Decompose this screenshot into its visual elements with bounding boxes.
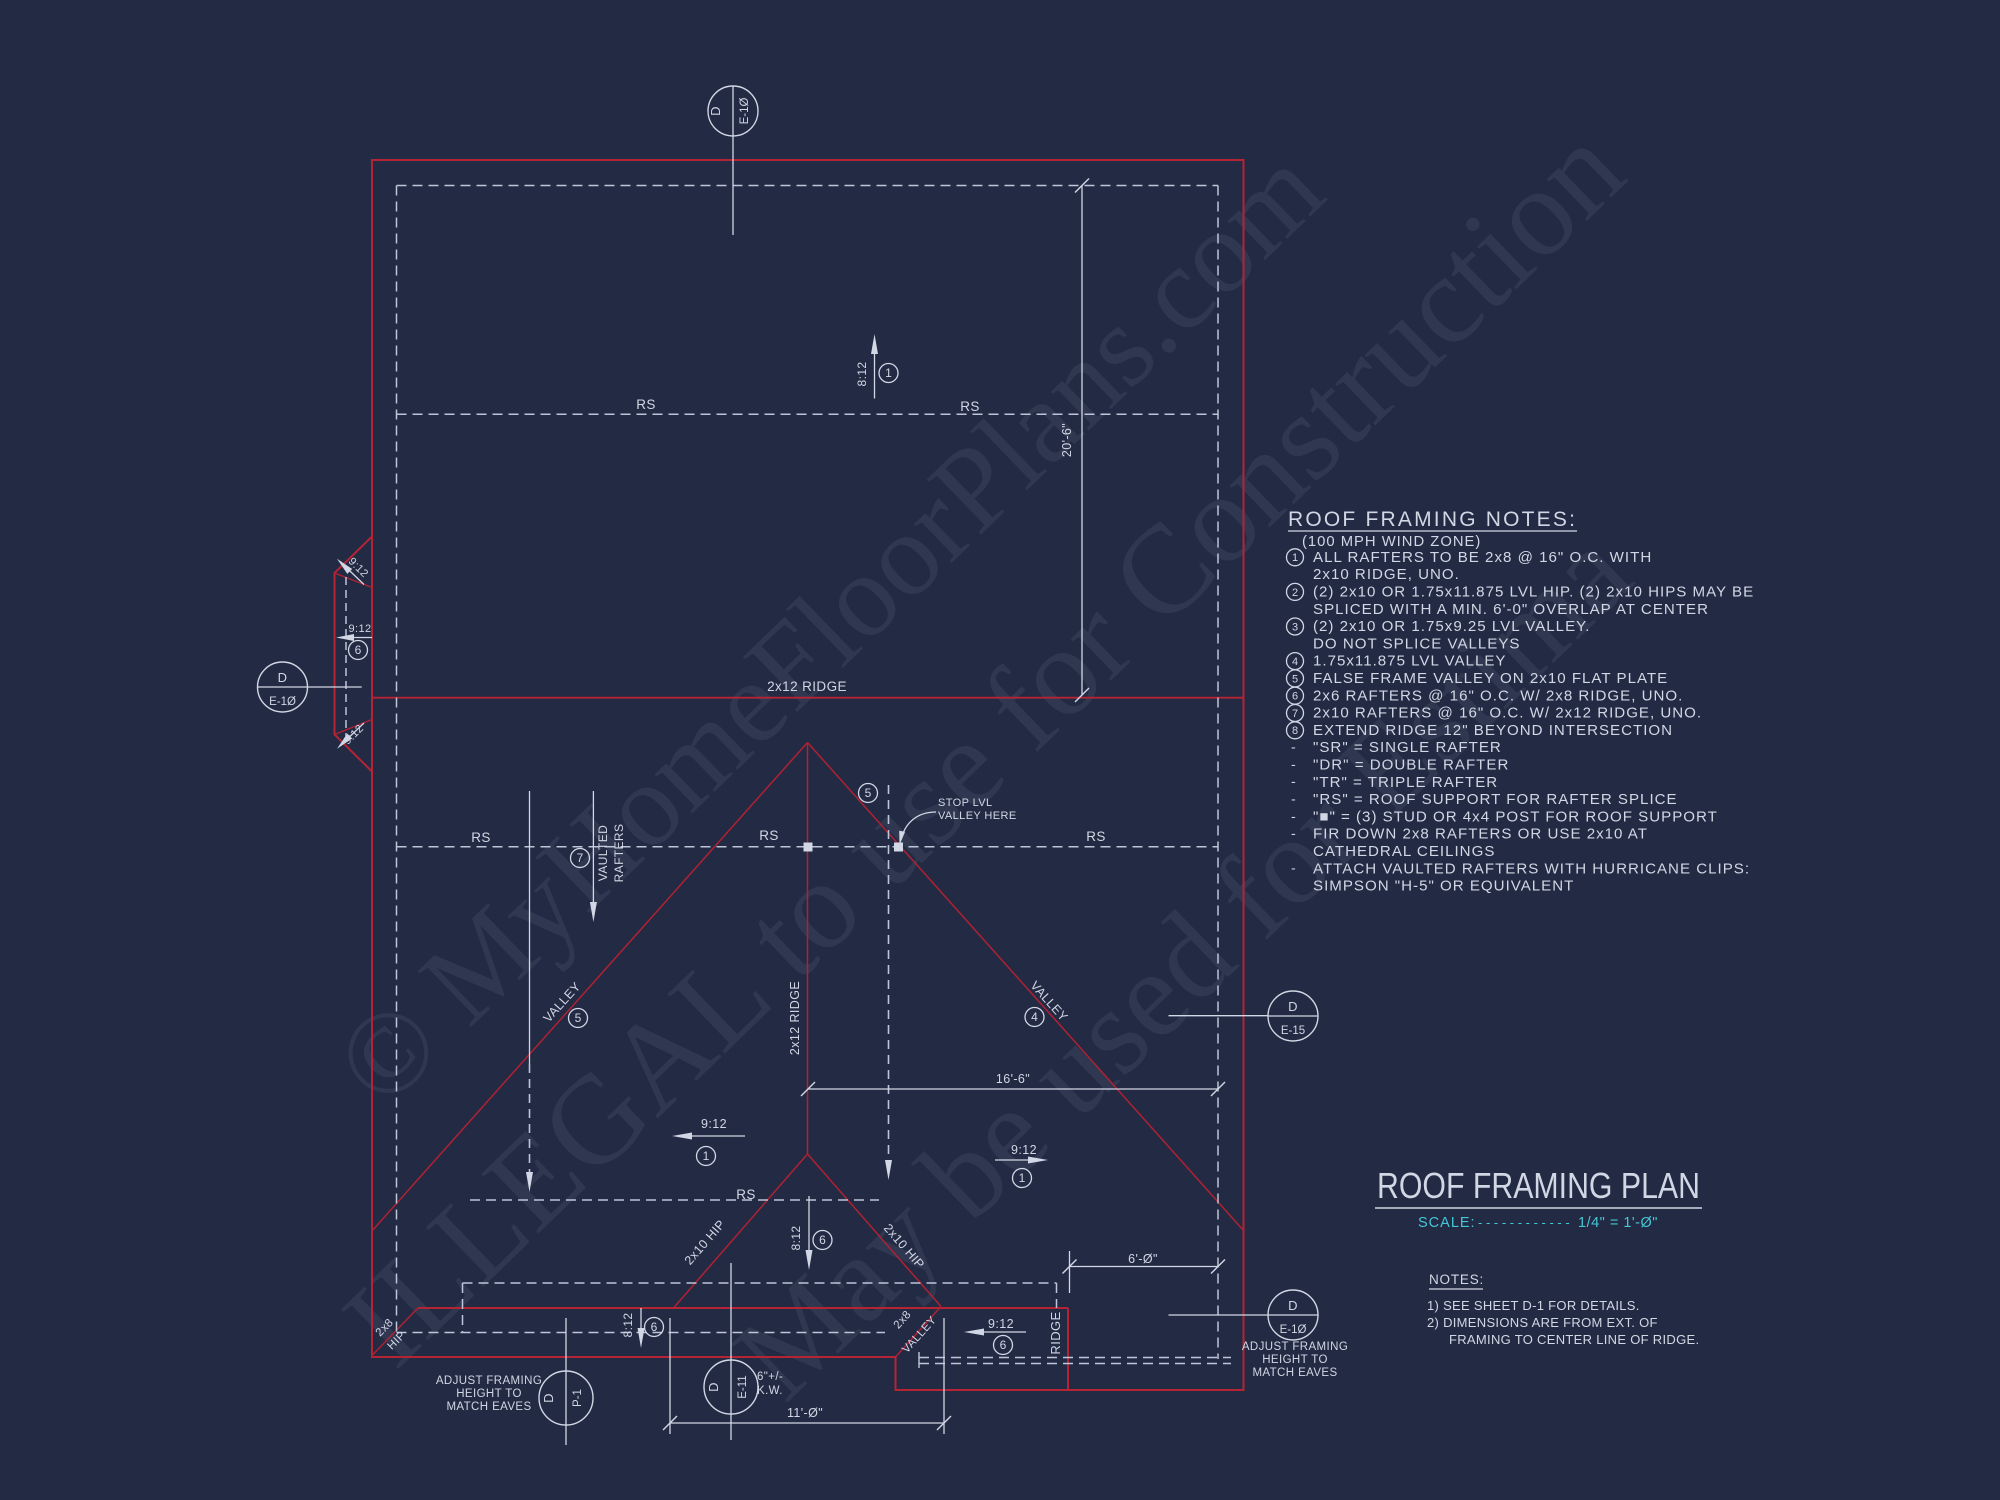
svg-text:RS: RS — [736, 1187, 756, 1202]
svg-text:FALSE FRAME VALLEY ON 2x10 FLA: FALSE FRAME VALLEY ON 2x10 FLAT PLATE — [1313, 670, 1668, 687]
svg-text:11'-Ø": 11'-Ø" — [787, 1406, 823, 1420]
svg-text:5: 5 — [575, 1011, 582, 1025]
svg-text:RS: RS — [636, 397, 656, 412]
svg-text:20'-6": 20'-6" — [1060, 423, 1074, 457]
svg-text:STOP LVL: STOP LVL — [938, 797, 993, 809]
svg-text:ALL RAFTERS TO BE 2x8 @ 16" O.: ALL RAFTERS TO BE 2x8 @ 16" O.C. WITH — [1313, 549, 1652, 566]
svg-text:7: 7 — [1292, 708, 1298, 720]
svg-text:-: - — [1291, 740, 1296, 756]
svg-text:-: - — [1291, 809, 1296, 825]
svg-text:-: - — [1291, 792, 1296, 808]
svg-text:1: 1 — [885, 366, 892, 380]
svg-text:(100 MPH WIND ZONE): (100 MPH WIND ZONE) — [1302, 534, 1481, 550]
svg-text:7: 7 — [577, 851, 584, 865]
svg-text:9:12: 9:12 — [348, 623, 371, 635]
svg-text:RS: RS — [759, 828, 779, 843]
svg-text:2) DIMENSIONS ARE FROM EXT. O: 2) DIMENSIONS ARE FROM EXT. OF — [1427, 1315, 1658, 1330]
svg-text:9:12: 9:12 — [988, 1317, 1014, 1331]
svg-text:16'-6": 16'-6" — [996, 1072, 1030, 1086]
svg-text:"RS" = ROOF SUPPORT FOR RAFT: "RS" = ROOF SUPPORT FOR RAFTER SPLICE — [1313, 791, 1678, 808]
svg-text:SIMPSON "H-5" OR EQUIVALENT: SIMPSON "H-5" OR EQUIVALENT — [1313, 878, 1574, 895]
svg-text:1.75x11.875 LVL VALLEY: 1.75x11.875 LVL VALLEY — [1313, 653, 1506, 670]
svg-text:ADJUST FRAMING: ADJUST FRAMING — [436, 1375, 542, 1387]
svg-text:5: 5 — [865, 786, 872, 800]
svg-text:2x12 RIDGE: 2x12 RIDGE — [767, 679, 847, 694]
svg-text:NOTES:: NOTES: — [1429, 1272, 1484, 1287]
svg-text:6: 6 — [1292, 691, 1298, 703]
svg-text:P-1: P-1 — [572, 1389, 584, 1407]
svg-text:6: 6 — [651, 1320, 658, 1334]
svg-text:ATTACH VAULTED RAFTERS WITH HU: ATTACH VAULTED RAFTERS WITH HURRICANE CL… — [1313, 860, 1750, 877]
svg-text:8:12: 8:12 — [789, 1226, 803, 1251]
svg-text:(2) 2x10 OR 1.75x9.25 LVL VALL: (2) 2x10 OR 1.75x9.25 LVL VALLEY. — [1313, 618, 1590, 635]
svg-text:E-1Ø: E-1Ø — [739, 98, 751, 125]
svg-text:EXTEND RIDGE 12" BEYOND INTERS: EXTEND RIDGE 12" BEYOND INTERSECTION — [1313, 722, 1673, 739]
svg-text:E-11: E-11 — [737, 1375, 749, 1398]
svg-text:6: 6 — [819, 1233, 826, 1247]
svg-text:9:12: 9:12 — [701, 1117, 727, 1131]
svg-text:"SR" = SINGLE RAFTER: "SR" = SINGLE RAFTER — [1313, 739, 1502, 756]
svg-text:3: 3 — [1292, 621, 1298, 633]
svg-text:D: D — [706, 1382, 721, 1392]
svg-text:K.W.: K.W. — [757, 1385, 783, 1397]
svg-text:MATCH EAVES: MATCH EAVES — [1252, 1367, 1337, 1379]
svg-text:FRAMING TO CENTER LINE OF RIDG: FRAMING TO CENTER LINE OF RIDGE. — [1449, 1332, 1699, 1347]
svg-text:6"+/-: 6"+/- — [757, 1371, 783, 1383]
svg-text:4: 4 — [1031, 1010, 1038, 1024]
svg-text:ADJUST FRAMING: ADJUST FRAMING — [1242, 1341, 1348, 1353]
svg-text:DO NOT SPLICE VALLEYS: DO NOT SPLICE VALLEYS — [1313, 635, 1521, 652]
svg-text:D: D — [541, 1393, 556, 1403]
svg-text:"DR" = DOUBLE RAFTER: "DR" = DOUBLE RAFTER — [1313, 757, 1509, 774]
svg-text:1: 1 — [1019, 1171, 1026, 1185]
svg-text:VAULTED: VAULTED — [596, 825, 610, 881]
svg-text:2x6 RAFTERS @ 16" O.C. W/ 2x8: 2x6 RAFTERS @ 16" O.C. W/ 2x8 RIDGE, UNO… — [1313, 687, 1683, 704]
svg-text:6: 6 — [355, 643, 362, 657]
svg-text:E-1Ø: E-1Ø — [1280, 1324, 1307, 1336]
svg-text:8:12: 8:12 — [621, 1313, 635, 1338]
svg-text:1) SEE SHEET D-1 FOR DETAILS.: 1) SEE SHEET D-1 FOR DETAILS. — [1427, 1298, 1640, 1313]
svg-text:MATCH EAVES: MATCH EAVES — [446, 1401, 531, 1413]
svg-text:1/4" = 1'-Ø": 1/4" = 1'-Ø" — [1578, 1215, 1658, 1231]
svg-text:D: D — [708, 106, 723, 116]
svg-text:RAFTERS: RAFTERS — [612, 824, 626, 883]
svg-text:2: 2 — [1292, 587, 1298, 599]
svg-text:1: 1 — [703, 1149, 710, 1163]
svg-text:6: 6 — [1000, 1338, 1007, 1352]
svg-text:5: 5 — [1292, 673, 1298, 685]
svg-text:RS: RS — [1086, 829, 1106, 844]
svg-text:SCALE:: SCALE: — [1418, 1215, 1476, 1231]
svg-text:D: D — [1288, 999, 1298, 1014]
svg-text:8: 8 — [1292, 725, 1298, 737]
svg-text:VALLEY HERE: VALLEY HERE — [938, 810, 1017, 822]
svg-text:2x10 RIDGE, UNO.: 2x10 RIDGE, UNO. — [1313, 566, 1460, 583]
svg-text:-: - — [1291, 861, 1296, 877]
svg-text:E-1Ø: E-1Ø — [269, 696, 296, 708]
svg-text:9:12: 9:12 — [1011, 1143, 1037, 1157]
svg-text:-: - — [1291, 774, 1296, 790]
svg-text:6'-Ø": 6'-Ø" — [1128, 1252, 1158, 1266]
svg-text:2x10 RAFTERS @ 16" O.C. W/ 2x1: 2x10 RAFTERS @ 16" O.C. W/ 2x12 RIDGE, U… — [1313, 705, 1702, 722]
svg-text:RS: RS — [471, 830, 491, 845]
svg-text:HEIGHT TO: HEIGHT TO — [1262, 1354, 1328, 1366]
svg-text:D: D — [1288, 1298, 1298, 1313]
svg-text:1: 1 — [1292, 552, 1298, 564]
svg-text:ROOF FRAMING NOTES:: ROOF FRAMING NOTES: — [1288, 508, 1577, 531]
svg-text:- - - - - - - - - - - -: - - - - - - - - - - - - — [1478, 1215, 1570, 1230]
svg-text:-: - — [1291, 826, 1296, 842]
svg-text:4: 4 — [1292, 656, 1298, 668]
svg-text:(2) 2x10 OR 1.75x11.875 LVL HI: (2) 2x10 OR 1.75x11.875 LVL HIP. (2) 2x1… — [1313, 584, 1754, 601]
svg-text:SPLICED WITH A MIN. 6'-0" OVER: SPLICED WITH A MIN. 6'-0" OVERLAP AT CEN… — [1313, 601, 1709, 618]
svg-text:"■" = (3) STUD OR 4x4 POST: "■" = (3) STUD OR 4x4 POST FOR ROOF SUPP… — [1313, 808, 1718, 825]
svg-text:D: D — [278, 670, 288, 685]
svg-text:-: - — [1291, 757, 1296, 773]
svg-text:RIDGE: RIDGE — [1048, 1311, 1063, 1354]
svg-text:RS: RS — [960, 399, 980, 414]
svg-text:CATHEDRAL CEILINGS: CATHEDRAL CEILINGS — [1313, 843, 1495, 860]
svg-text:HEIGHT TO: HEIGHT TO — [456, 1388, 522, 1400]
svg-text:FIR DOWN 2x8 RAFTERS OR USE 2x: FIR DOWN 2x8 RAFTERS OR USE 2x10 AT — [1313, 826, 1648, 843]
svg-text:E-15: E-15 — [1281, 1025, 1305, 1037]
svg-text:"TR" = TRIPLE RAFTER: "TR" = TRIPLE RAFTER — [1313, 774, 1498, 791]
svg-text:2x12 RIDGE: 2x12 RIDGE — [788, 981, 802, 1055]
svg-text:8:12: 8:12 — [855, 362, 869, 387]
svg-text:ROOF FRAMING PLAN: ROOF FRAMING PLAN — [1377, 1165, 1700, 1206]
